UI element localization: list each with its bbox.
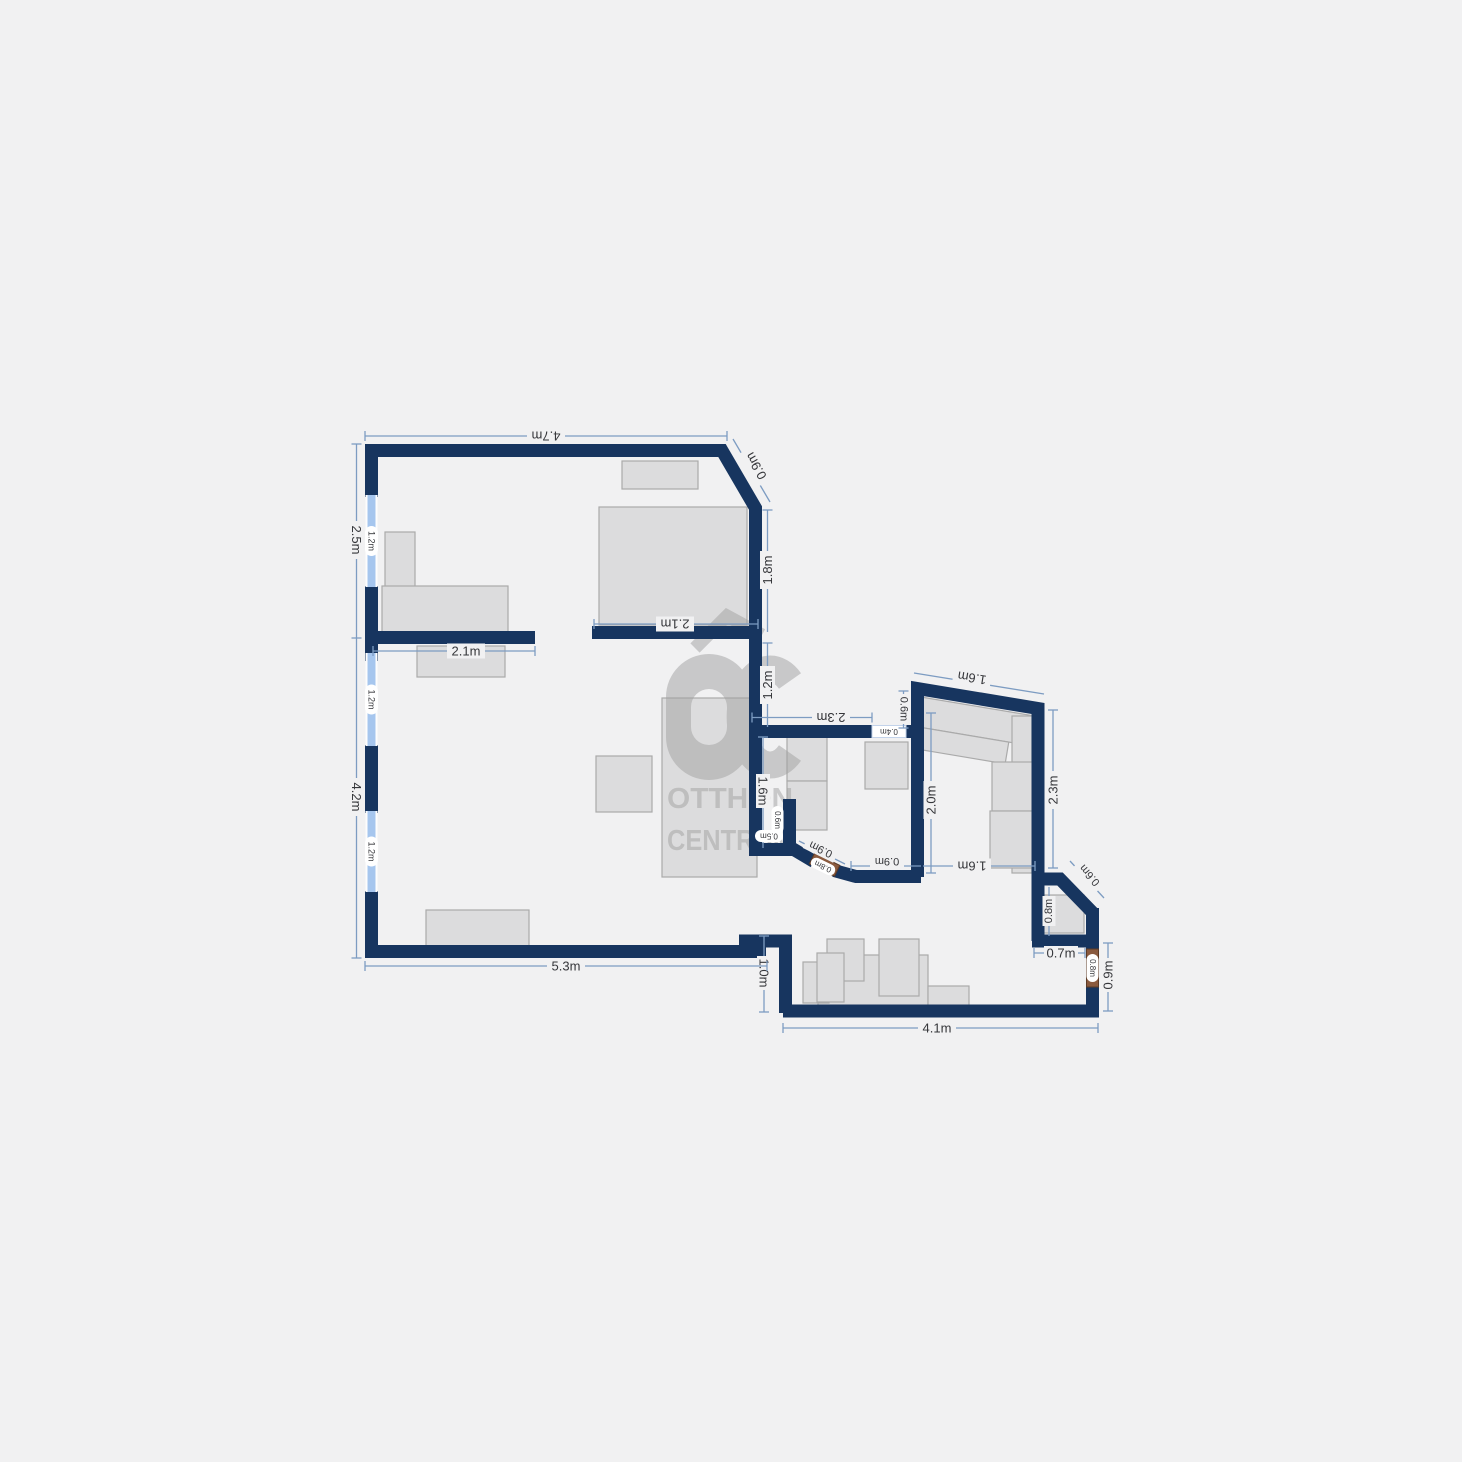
dim-top-width: 4.7m (365, 429, 727, 444)
furniture-item (622, 461, 698, 489)
dim-label: 0.6m (898, 697, 910, 721)
dim-bedroom-wall-left: 2.1m (373, 644, 535, 659)
furniture-item (385, 532, 415, 594)
dim-label: 0.5m (760, 832, 778, 841)
furniture-item (879, 939, 919, 996)
dim-label: 2.3m (817, 710, 846, 725)
dim-label: 2.1m (452, 644, 481, 659)
dim-side-door: 0.8m (1087, 954, 1099, 982)
furniture-item (817, 953, 844, 1002)
furniture-item (382, 586, 508, 636)
dim-left-lower: 4.2m (349, 638, 364, 958)
furniture-item (992, 762, 1034, 811)
dim-label: 1.2m (367, 841, 377, 861)
dim-bottom-right: 4.1m (783, 1021, 1098, 1036)
wall-entry-diag-lower (834, 871, 921, 877)
dim-left-upper: 2.5m (349, 444, 364, 638)
dim-kitchen-west: 0.6m (897, 691, 910, 728)
dim-label: 4.2m (349, 783, 364, 812)
dim-window-upper: 1.2m (365, 526, 378, 556)
dim-label: 1.6m (957, 668, 988, 687)
dim-label: 4.1m (923, 1021, 952, 1036)
dim-label: 1.6m (958, 859, 987, 874)
dim-label: 4.7m (532, 429, 561, 444)
floor-plan-page: OTTHON CENTRUM (0, 0, 1462, 1462)
dim-bath-bottom: 0.7m (1034, 946, 1085, 961)
dim-label: 2.0m (924, 786, 939, 815)
dim-label: 0.7m (1047, 946, 1076, 961)
dim-alcove-depth: 0.6m (772, 806, 784, 834)
dim-label: 1.6m (756, 777, 771, 806)
dim-label: 2.1m (661, 617, 690, 632)
furniture-sofa (426, 910, 529, 948)
dim-side-wall: 0.9m (1101, 943, 1116, 1011)
furniture-bed (599, 507, 747, 625)
dim-label: 0.8m (1088, 959, 1097, 977)
dim-alcove-width: 0.5m (755, 830, 783, 842)
dim-kitchen-east: 2.3m (1046, 710, 1061, 868)
dim-label: 1.8m (760, 556, 775, 585)
floor-plan-svg: OTTHON CENTRUM (0, 0, 1462, 1462)
dim-label: 1.0m (757, 959, 772, 988)
dim-label: 2.3m (1046, 776, 1061, 805)
dim-label: 1.2m (367, 689, 377, 709)
dim-label: 0.9m (875, 855, 899, 867)
furniture-item (865, 742, 908, 789)
dim-label: 0.6m (773, 811, 782, 829)
dim-hall-opening: 0.4m (880, 727, 898, 736)
dim-bottom-left: 5.3m (365, 959, 767, 974)
dim-label: 2.5m (349, 526, 364, 555)
dim-label: 1.2m (760, 671, 775, 700)
furniture-item (596, 756, 652, 812)
dim-window-lower: 1.2m (365, 837, 378, 867)
dim-east-upper: 1.8m (760, 510, 775, 632)
dim-hall-top: 2.3m (752, 710, 872, 725)
dim-label: 0.9m (1101, 961, 1116, 990)
dim-label: 5.3m (552, 959, 581, 974)
dim-window-middle: 1.2m (365, 685, 378, 715)
dim-label: 0.4m (880, 727, 898, 736)
dim-label: 0.8m (1043, 899, 1055, 923)
furniture-item (990, 811, 1036, 868)
dim-label: 1.2m (367, 531, 377, 551)
dim-entry-wall: 0.9m (851, 854, 921, 871)
